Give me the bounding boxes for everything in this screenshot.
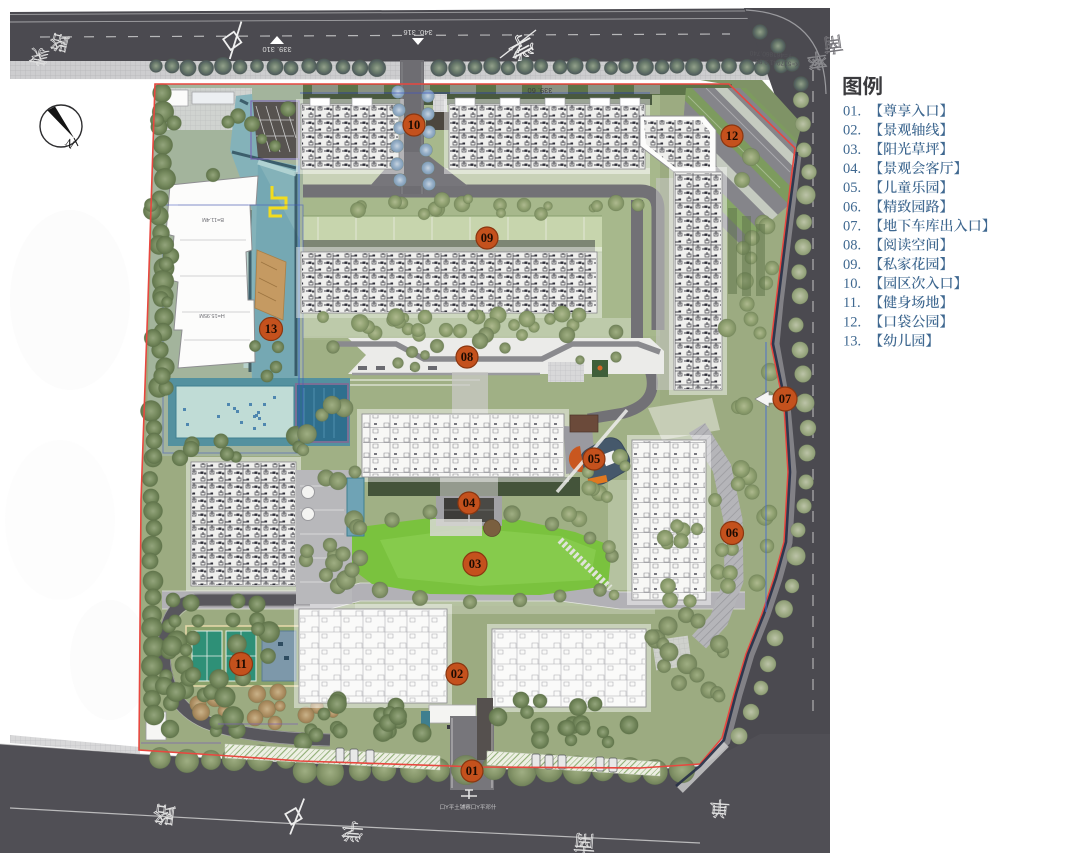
svg-text:01.: 01. xyxy=(843,104,861,120)
svg-text:04.: 04. xyxy=(843,161,861,177)
svg-text:08.: 08. xyxy=(843,238,861,254)
svg-text:09: 09 xyxy=(481,231,494,245)
svg-text:07.: 07. xyxy=(843,219,861,235)
svg-text:02: 02 xyxy=(451,667,464,681)
svg-text:05.: 05. xyxy=(843,180,861,196)
svg-text:11.: 11. xyxy=(843,295,861,311)
svg-text:10: 10 xyxy=(408,118,421,132)
svg-text:09.: 09. xyxy=(843,257,861,273)
svg-text:13: 13 xyxy=(265,322,278,336)
svg-text:02.: 02. xyxy=(843,123,861,139)
svg-text:05: 05 xyxy=(588,452,601,466)
svg-text:01: 01 xyxy=(466,764,479,778)
svg-text:06.: 06. xyxy=(843,199,861,215)
svg-text:H=15.95M: H=15.95M xyxy=(199,312,225,318)
svg-text:10.: 10. xyxy=(843,276,861,292)
svg-text:13.: 13. xyxy=(843,334,861,350)
svg-text:04: 04 xyxy=(463,496,476,510)
svg-text:07: 07 xyxy=(779,392,792,406)
svg-text:339. 60: 339. 60 xyxy=(527,86,552,95)
svg-text:口Y平土铺察口Y平邓什: 口Y平土铺察口Y平邓什 xyxy=(440,803,497,811)
svg-text:03: 03 xyxy=(469,557,482,571)
svg-text:03.: 03. xyxy=(843,142,861,158)
svg-text:12.: 12. xyxy=(843,314,861,330)
svg-text:12: 12 xyxy=(726,129,739,143)
svg-text:340. 316: 340. 316 xyxy=(403,28,432,37)
svg-text:06: 06 xyxy=(726,526,739,540)
svg-text:B=11.4M: B=11.4M xyxy=(202,216,224,222)
svg-text:339. 310: 339. 310 xyxy=(262,45,291,54)
svg-text:08: 08 xyxy=(461,350,474,364)
svg-text:11: 11 xyxy=(235,657,247,671)
